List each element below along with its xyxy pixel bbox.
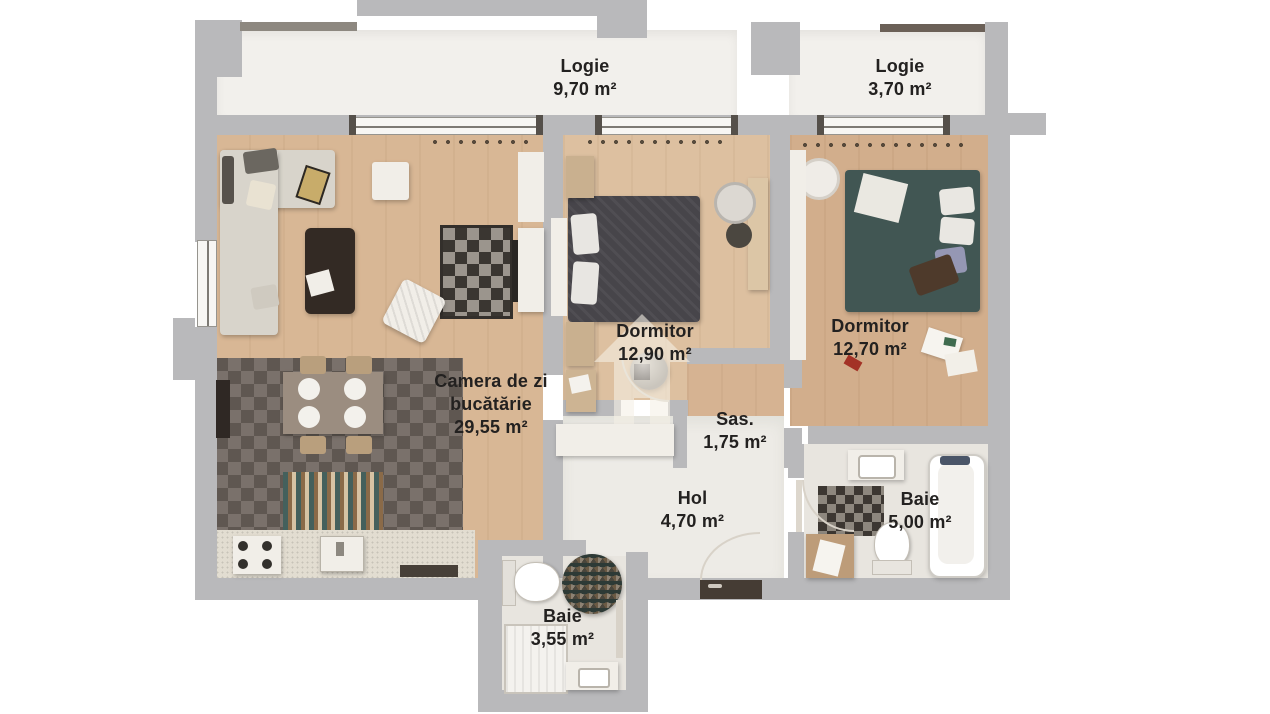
room-label-baie-2: Baie 3,55 m² [495,605,630,651]
desk-chair [726,222,752,248]
wall-segment [195,327,217,580]
place-setting [344,378,366,400]
room-label-camera-de-zi: Camera de zi bucătărie 29,55 m² [419,370,563,439]
wall-segment [640,578,1010,600]
bed-pillow [939,186,976,215]
tv [512,240,518,302]
wall-segment [357,0,597,16]
wall-segment [1008,113,1046,135]
window-post [731,115,738,135]
bathtub-faucet [940,456,970,465]
room-area: 29,55 m² [419,416,563,439]
wall-segment [880,24,986,32]
wall-segment [808,426,988,444]
wall-segment [988,115,1010,600]
toilet [514,562,560,602]
wall-pillar [751,22,800,75]
room-name: Dormitor [790,315,950,338]
vanity-basin [578,668,610,688]
sofa-armrest [222,156,234,204]
sink-basin [858,455,896,479]
window-post [536,115,543,135]
counter-toe-kick [400,565,458,577]
room-label-sas: Sas. 1,75 m² [690,408,780,454]
coffee-table [305,228,355,314]
sofa-pillow [246,180,277,211]
wall-segment [195,578,488,600]
shelf-unit [518,152,544,222]
wall-segment [788,444,804,478]
wall-segment [173,318,195,380]
room-name: Hol [610,487,775,510]
room-name: Baie [855,488,985,511]
faucet [336,542,344,556]
bed-pillow [571,261,600,305]
dining-table [283,372,383,434]
room-label-logia-1: Logie 9,70 m² [500,55,670,101]
stove-burner [238,559,248,569]
plant-decor [800,140,965,150]
window-post [595,115,602,135]
place-setting [298,378,320,400]
room-label-dormitor-1: Dormitor 12,90 m² [575,320,735,366]
room-label-baie-1: Baie 5,00 m² [855,488,985,534]
dining-chair [346,436,372,454]
room-name: Dormitor [575,320,735,343]
dining-chair [300,356,326,374]
room-name: Baie [495,605,630,628]
wall-segment [478,540,586,556]
sofa-pillow [243,148,280,175]
living-rug [440,225,513,319]
room-name: Camera de zi bucătărie [419,370,563,416]
kitchen-rug [283,472,383,530]
window-post [817,115,824,135]
room-name: Logie [815,55,985,78]
bed-pillow [939,217,975,246]
room-label-dormitor-2: Dormitor 12,70 m² [790,315,950,361]
room-area: 3,55 m² [495,628,630,651]
room-area: 4,70 m² [610,510,775,533]
sofa-pillow [250,284,279,310]
room-area: 12,70 m² [790,338,950,361]
toilet-tank [872,560,912,575]
wall-segment [770,135,790,348]
wall-segment [985,22,1008,115]
room-area: 9,70 m² [500,78,670,101]
place-setting [344,406,366,428]
plant-decor [585,137,730,147]
room-area: 12,90 m² [575,343,735,366]
room-label-logia-2: Logie 3,70 m² [815,55,985,101]
hall-wardrobe [556,424,674,456]
window-living [352,117,542,135]
nightstand [566,156,594,198]
bookshelf [551,218,567,316]
stove-burner [262,559,272,569]
dining-chair [346,356,372,374]
window-bedroom-2 [820,117,950,135]
room-area: 5,00 m² [855,511,985,534]
room-name: Sas. [690,408,780,431]
wall-segment [788,532,804,578]
wall-segment [240,22,357,31]
round-chair [714,182,756,224]
dining-chair [300,436,326,454]
plant-decor [430,137,530,147]
tv-cabinet [518,228,544,312]
tall-cabinet [216,380,230,438]
door-slab-bathroom-1 [796,480,802,532]
door-handle [708,584,722,588]
entrance-door [700,580,762,599]
floor-plan: Logie 9,70 m² Logie 3,70 m² Dormitor 12,… [0,0,1270,714]
side-table [372,162,409,200]
window-bedroom-1 [598,117,738,135]
wall-segment [597,0,647,38]
window-post [943,115,950,135]
room-label-hol: Hol 4,70 m² [610,487,775,533]
room-area: 1,75 m² [690,431,780,454]
stove-burner [238,541,248,551]
bed-pillow [570,213,599,255]
room-name: Logie [500,55,670,78]
place-setting [298,406,320,428]
window-living-side [197,240,217,327]
window-post [349,115,356,135]
stove-burner [262,541,272,551]
room-area: 3,70 m² [815,78,985,101]
